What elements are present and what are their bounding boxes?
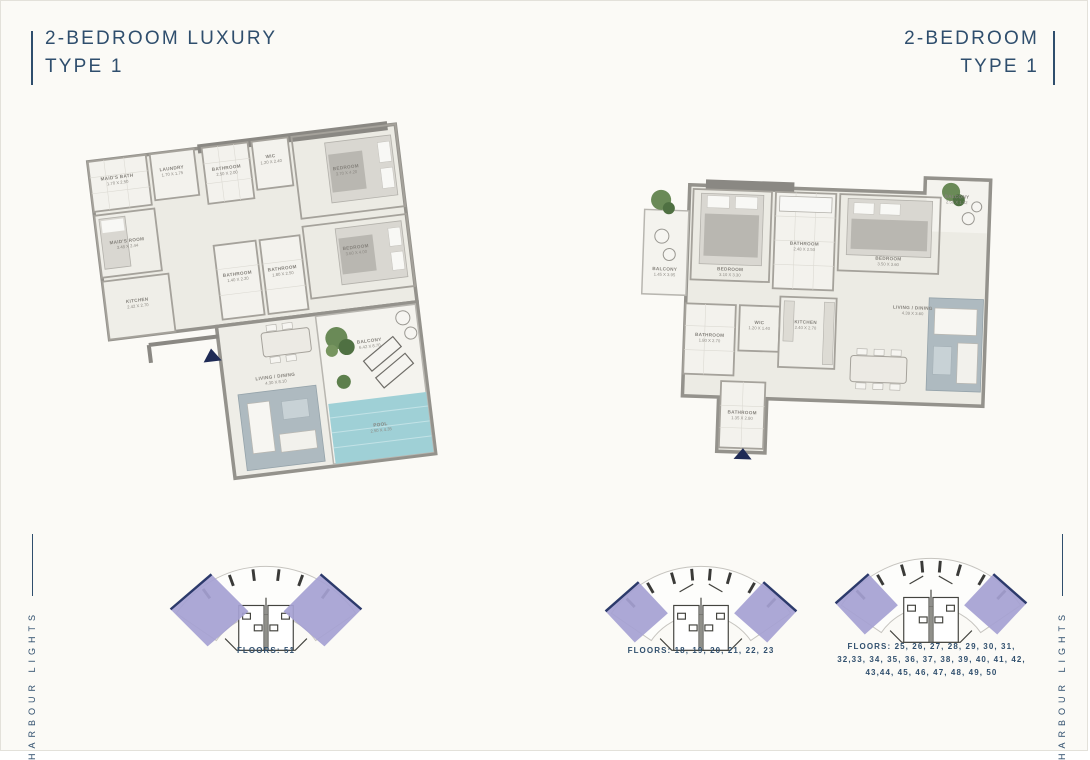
- left-title-rule: [31, 31, 33, 85]
- floorplan-left-svg: MAID'S BATH1.70 X 2.50 LAUNDRY1.70 X 1.7…: [79, 116, 441, 500]
- right-title-line1: 2-BEDROOM: [904, 29, 1039, 48]
- brand-right: HARBOUR LIGHTS: [1051, 534, 1073, 760]
- left-plan-title: 2-BEDROOM LUXURY TYPE 1: [45, 29, 277, 76]
- svg-text:1.20 X 1.40: 1.20 X 1.40: [748, 325, 770, 331]
- floorplan-2br-luxury-type1: MAID'S BATH1.70 X 2.50 LAUNDRY1.70 X 1.7…: [79, 116, 441, 505]
- brand-right-text: HARBOUR LIGHTS: [1057, 610, 1067, 760]
- svg-text:1.45 X 3.95: 1.45 X 3.95: [654, 272, 676, 278]
- brand-left: HARBOUR LIGHTS: [21, 534, 43, 760]
- svg-text:4.39 X 3.60: 4.39 X 3.60: [902, 310, 924, 316]
- brand-left-text: HARBOUR LIGHTS: [27, 610, 37, 760]
- floorplan-right-svg: BALCONY1.45 X 3.95 BEDROOM3.10 X 3.30 BA…: [622, 150, 1015, 475]
- brand-left-rule: [32, 534, 33, 596]
- svg-text:1.35 X 2.80: 1.35 X 2.80: [731, 415, 753, 421]
- svg-text:3.10 X 3.30: 3.10 X 3.30: [719, 272, 741, 278]
- keyplan-caption-3: FLOORS: 25, 26, 27, 28, 29, 30, 31, 32,3…: [834, 641, 1029, 679]
- svg-text:2.48 X 2.50: 2.48 X 2.50: [793, 246, 815, 252]
- brand-right-rule: [1062, 534, 1063, 596]
- brochure-page: 2-BEDROOM LUXURY TYPE 1 2-BEDROOM TYPE 1…: [0, 0, 1088, 751]
- right-title-line2: TYPE 1: [904, 57, 1039, 76]
- right-title-rule: [1053, 31, 1055, 85]
- right-plan-title: 2-BEDROOM TYPE 1: [904, 29, 1039, 76]
- left-title-line1: 2-BEDROOM LUXURY: [45, 29, 277, 48]
- left-title-line2: TYPE 1: [45, 57, 277, 76]
- floorplan-2br-type1: BALCONY1.45 X 3.95 BEDROOM3.10 X 3.30 BA…: [622, 150, 1015, 480]
- svg-text:WIC: WIC: [754, 320, 764, 325]
- svg-text:2.40 X 2.70: 2.40 X 2.70: [795, 325, 817, 331]
- svg-text:3.50 X 3.60: 3.50 X 3.60: [877, 261, 899, 267]
- svg-text:1.80 X 2.70: 1.80 X 2.70: [699, 338, 721, 344]
- svg-text:2.50 X 1.32: 2.50 X 1.32: [946, 199, 968, 205]
- keyplan-caption-2: FLOORS: 18, 19, 20, 21, 22, 23: [591, 645, 811, 658]
- keyplan-svg: [831, 541, 1031, 653]
- keyplan-caption-1: FLOORS: 51: [166, 645, 366, 658]
